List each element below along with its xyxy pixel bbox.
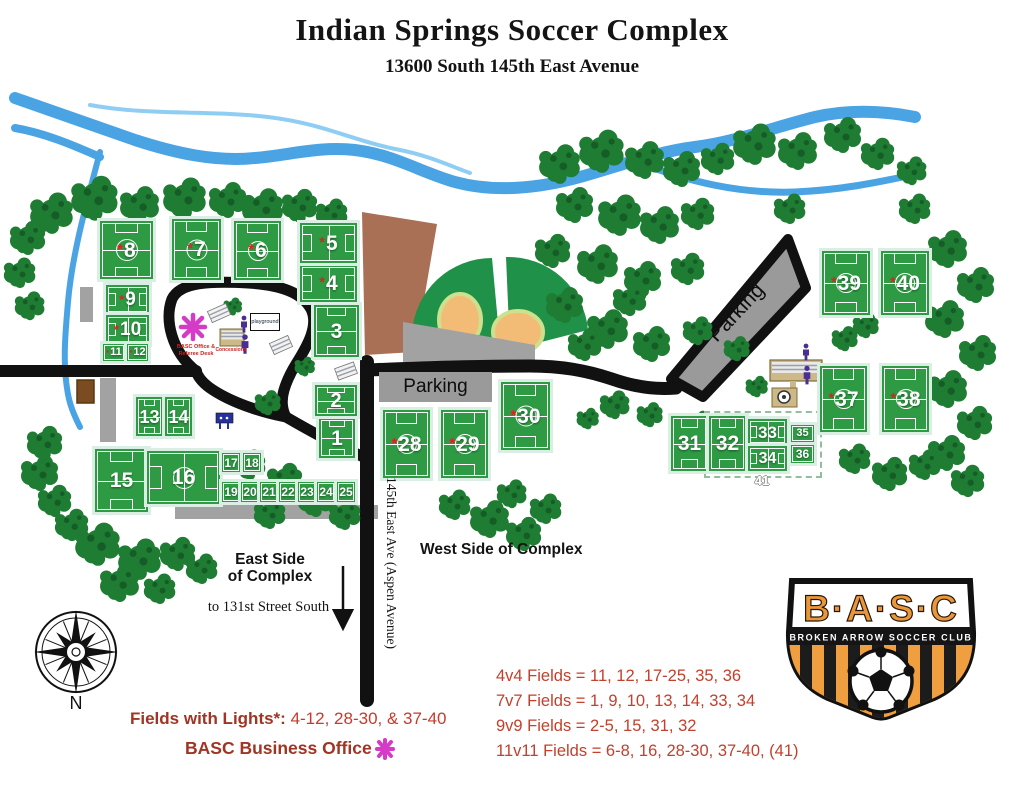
info-sign-icon (216, 413, 233, 429)
logo-initials: B·A·S·C (803, 588, 959, 629)
concessions-building-icon (220, 329, 244, 346)
concessions-label: Concessions (207, 347, 255, 353)
compass-rose-icon: N (34, 610, 118, 713)
east-side-line2: of Complex (210, 568, 330, 585)
east-side-label: East Side of Complex (210, 551, 330, 585)
basc-logo: B·A·S·C BROKEN ARROW SOCCER CLUB (786, 581, 976, 725)
office-note: BASC Business Office (185, 738, 372, 759)
parking-west-label: Parking (403, 376, 467, 398)
restroom-person-icon (803, 344, 809, 361)
picnic-shelter-icon (335, 362, 358, 380)
legend-field-type-line: 11v11 Fields = 6-8, 16, 28-30, 37-40, (4… (496, 742, 799, 767)
field-types-legend: 4v4 Fields = 11, 12, 17-25, 35, 367v7 Fi… (496, 667, 799, 767)
picnic-shelter-icon (207, 303, 230, 322)
building-icon (77, 380, 94, 403)
office-asterisk-icon (181, 315, 205, 339)
soccer-complex-map: Parking (0, 0, 1024, 791)
west-side-label: West Side of Complex (420, 541, 620, 559)
combined-field-41-label: 41 (748, 473, 776, 488)
legend-field-type-line: 4v4 Fields = 11, 12, 17-25, 35, 36 (496, 667, 799, 692)
pavilion-icon (770, 360, 822, 407)
lights-note: Fields with Lights*: 4-12, 28-30, & 37-4… (130, 709, 447, 729)
logo-club-name: BROKEN ARROW SOCCER CLUB (789, 633, 972, 643)
basc-office-asterisk-icon (375, 738, 395, 760)
legend-field-type-line: 7v7 Fields = 1, 9, 10, 13, 14, 33, 34 (496, 692, 799, 717)
combined-field-41-outline (704, 411, 822, 478)
compass-north-label: N (70, 693, 83, 713)
legend-field-type-line: 9v9 Fields = 2-5, 15, 31, 32 (496, 717, 799, 742)
lights-note-title: Fields with Lights*: (130, 709, 286, 728)
to-131st-label: to 131st Street South (196, 599, 341, 616)
east-side-line1: East Side (210, 551, 330, 568)
parking-west-lot: Parking (379, 372, 492, 402)
street-name-label: 145th East Ave (Aspen Avenue) (383, 477, 399, 649)
picnic-shelter-icon (269, 335, 292, 354)
lights-note-values: 4-12, 28-30, & 37-40 (286, 709, 447, 728)
